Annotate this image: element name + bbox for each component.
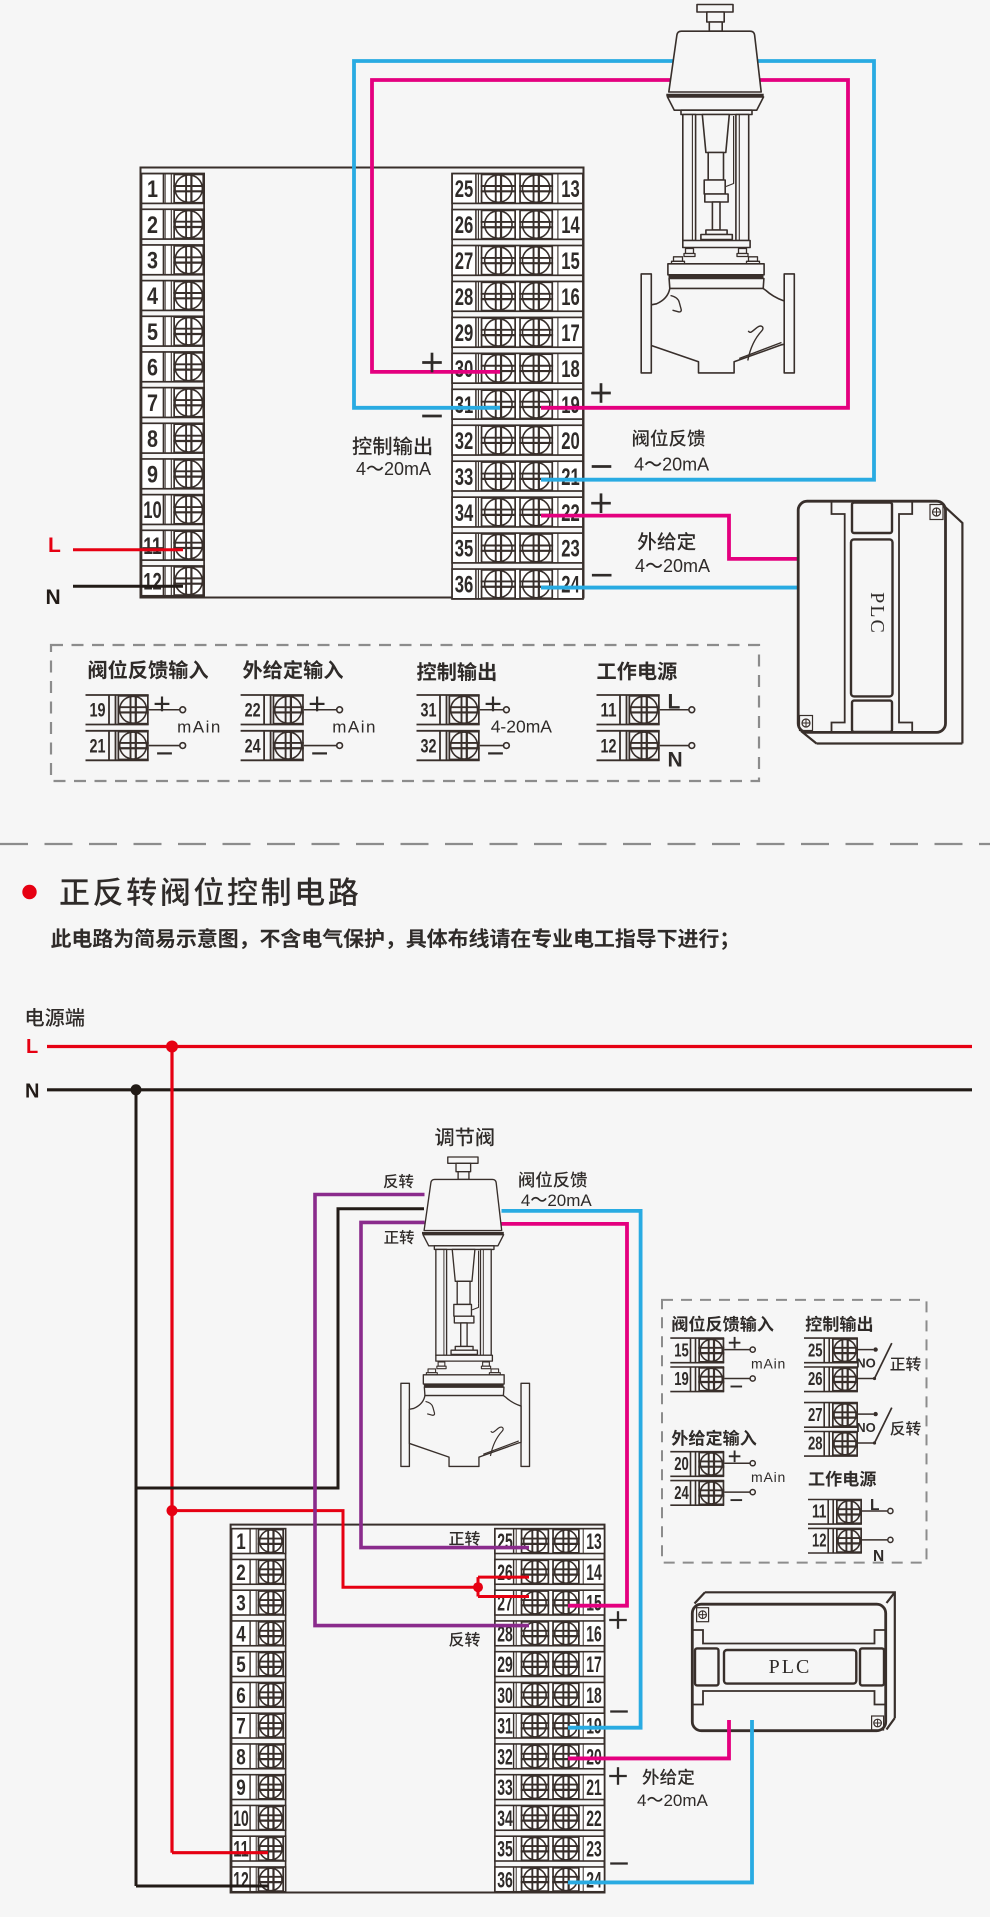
svg-text:L: L	[870, 1497, 879, 1514]
svg-text:1: 1	[236, 1529, 246, 1554]
svg-text:L: L	[48, 534, 61, 557]
svg-text:9: 9	[236, 1775, 246, 1800]
svg-text:4: 4	[634, 455, 644, 475]
svg-text:29: 29	[497, 1652, 513, 1677]
svg-text:19: 19	[561, 392, 580, 419]
svg-text:22: 22	[586, 1806, 602, 1831]
svg-text:24: 24	[561, 572, 580, 599]
svg-text:N: N	[873, 1548, 884, 1565]
svg-text:32: 32	[455, 428, 474, 455]
svg-text:7: 7	[236, 1714, 246, 1739]
svg-text:20mA: 20mA	[547, 1191, 592, 1210]
svg-text:28: 28	[808, 1433, 823, 1454]
svg-text:mAin: mAin	[751, 1469, 786, 1485]
svg-text:NO: NO	[856, 1420, 876, 1435]
svg-text:21: 21	[586, 1775, 602, 1800]
svg-text:29: 29	[455, 320, 474, 347]
svg-text:11: 11	[143, 533, 162, 560]
svg-text:18: 18	[586, 1683, 602, 1708]
svg-text:34: 34	[497, 1806, 513, 1831]
svg-text:17: 17	[586, 1652, 602, 1677]
svg-text:23: 23	[561, 536, 580, 563]
svg-text:5: 5	[236, 1652, 246, 1677]
svg-text:27: 27	[455, 248, 474, 275]
svg-text:11: 11	[812, 1501, 827, 1522]
svg-text:20mA: 20mA	[663, 1791, 708, 1810]
svg-text:8: 8	[236, 1744, 246, 1769]
svg-text:L: L	[668, 691, 681, 714]
svg-text:N: N	[668, 749, 683, 772]
svg-text:20: 20	[561, 428, 580, 455]
svg-text:23: 23	[586, 1837, 602, 1862]
svg-text:15: 15	[561, 248, 580, 275]
svg-text:14: 14	[561, 212, 580, 239]
svg-text:15: 15	[674, 1339, 689, 1360]
svg-text:35: 35	[497, 1837, 513, 1862]
svg-text:24: 24	[674, 1482, 689, 1503]
svg-text:25: 25	[497, 1529, 513, 1554]
svg-text:33: 33	[497, 1775, 513, 1800]
svg-text:26: 26	[808, 1368, 823, 1389]
svg-text:PLC: PLC	[769, 1656, 812, 1678]
svg-text:5: 5	[147, 319, 158, 346]
svg-text:mAin: mAin	[332, 717, 377, 736]
svg-text:4: 4	[635, 556, 645, 576]
svg-text:4-20mA: 4-20mA	[491, 716, 553, 736]
svg-text:20mA: 20mA	[663, 556, 710, 576]
svg-text:3: 3	[147, 248, 158, 275]
svg-text:12: 12	[233, 1867, 249, 1892]
svg-text:21: 21	[561, 464, 580, 491]
svg-text:4: 4	[236, 1621, 246, 1646]
svg-text:17: 17	[561, 320, 580, 347]
svg-text:1: 1	[147, 176, 158, 203]
svg-text:10: 10	[233, 1806, 249, 1831]
svg-text:4: 4	[356, 459, 366, 479]
svg-text:12: 12	[601, 736, 617, 757]
svg-text:N: N	[46, 586, 61, 609]
svg-text:7: 7	[147, 390, 158, 417]
svg-text:15: 15	[586, 1591, 602, 1616]
svg-text:19: 19	[674, 1368, 689, 1389]
svg-text:31: 31	[455, 392, 474, 419]
svg-text:20mA: 20mA	[662, 455, 709, 475]
svg-text:25: 25	[455, 176, 474, 203]
svg-text:35: 35	[455, 536, 474, 563]
svg-text:6: 6	[236, 1683, 246, 1708]
svg-text:mAin: mAin	[177, 717, 222, 736]
svg-text:33: 33	[455, 464, 474, 491]
svg-text:4: 4	[521, 1191, 530, 1210]
svg-text:21: 21	[90, 736, 106, 757]
svg-text:22: 22	[245, 701, 261, 722]
svg-text:3: 3	[236, 1591, 246, 1616]
svg-text:4: 4	[147, 283, 159, 310]
svg-text:14: 14	[586, 1560, 602, 1585]
svg-text:16: 16	[561, 284, 580, 311]
svg-text:13: 13	[561, 176, 580, 203]
svg-text:24: 24	[245, 736, 261, 757]
svg-text:4: 4	[637, 1791, 646, 1810]
svg-text:30: 30	[497, 1683, 513, 1708]
svg-text:6: 6	[147, 355, 158, 382]
svg-text:12: 12	[143, 569, 162, 596]
svg-text:27: 27	[497, 1591, 513, 1616]
svg-text:N: N	[25, 1081, 39, 1103]
svg-text:30: 30	[455, 356, 474, 383]
svg-text:9: 9	[147, 462, 158, 489]
svg-text:PLC: PLC	[866, 592, 888, 635]
svg-text:36: 36	[497, 1867, 513, 1892]
svg-text:32: 32	[497, 1744, 513, 1769]
svg-text:10: 10	[143, 497, 162, 524]
svg-text:8: 8	[147, 426, 158, 453]
svg-text:11: 11	[233, 1837, 249, 1862]
svg-text:24: 24	[586, 1867, 602, 1892]
svg-text:20mA: 20mA	[384, 459, 431, 479]
svg-text:L: L	[26, 1036, 38, 1058]
svg-text:22: 22	[561, 500, 580, 527]
svg-text:32: 32	[421, 736, 437, 757]
svg-text:16: 16	[586, 1621, 602, 1646]
svg-text:19: 19	[90, 701, 106, 722]
svg-text:31: 31	[497, 1714, 513, 1739]
svg-text:25: 25	[808, 1339, 823, 1360]
svg-text:31: 31	[421, 701, 437, 722]
svg-text:28: 28	[455, 284, 474, 311]
svg-text:mAin: mAin	[751, 1356, 786, 1372]
svg-text:26: 26	[497, 1560, 513, 1585]
svg-text:11: 11	[601, 701, 617, 722]
svg-text:NO: NO	[856, 1355, 876, 1370]
svg-text:2: 2	[147, 212, 158, 239]
svg-text:27: 27	[808, 1404, 823, 1425]
svg-text:34: 34	[455, 500, 474, 527]
svg-text:13: 13	[586, 1529, 602, 1554]
svg-text:2: 2	[236, 1560, 246, 1585]
svg-text:36: 36	[455, 572, 474, 599]
svg-text:12: 12	[812, 1530, 827, 1551]
svg-text:26: 26	[455, 212, 474, 239]
svg-text:18: 18	[561, 356, 580, 383]
svg-text:20: 20	[674, 1453, 689, 1474]
